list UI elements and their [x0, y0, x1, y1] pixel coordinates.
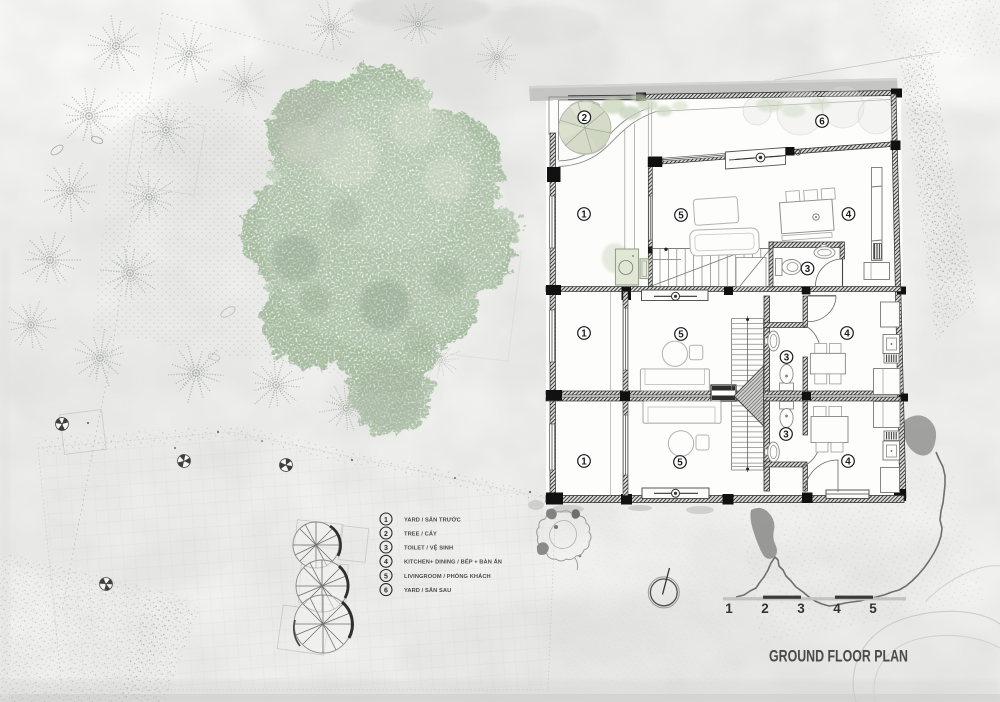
svg-text:GROUND FLOOR PLAN: GROUND FLOOR PLAN	[769, 648, 908, 666]
svg-text:5: 5	[384, 573, 388, 580]
svg-text:5: 5	[677, 458, 683, 469]
svg-text:LIVINGROOM / PHÒNG KHÁCH: LIVINGROOM / PHÒNG KHÁCH	[404, 572, 491, 580]
svg-text:4: 4	[833, 601, 841, 616]
svg-text:6: 6	[819, 117, 825, 128]
svg-text:KITCHEN+ DINING / BẾP + BÀN ĂN: KITCHEN+ DINING / BẾP + BÀN ĂN	[404, 559, 502, 566]
svg-text:3: 3	[783, 430, 789, 441]
svg-text:3: 3	[384, 545, 388, 552]
svg-text:YARD / SÂN TRƯỚC: YARD / SÂN TRƯỚC	[404, 515, 461, 523]
svg-text:5: 5	[678, 211, 684, 222]
svg-text:3: 3	[784, 353, 790, 364]
svg-text:1: 1	[581, 210, 587, 221]
svg-text:6: 6	[384, 587, 388, 594]
svg-text:5: 5	[869, 601, 877, 616]
svg-text:4: 4	[844, 329, 850, 340]
svg-text:2: 2	[761, 601, 769, 616]
svg-text:TOILET / VỆ SINH: TOILET / VỆ SINH	[404, 543, 453, 551]
svg-text:3: 3	[797, 601, 805, 616]
svg-text:1: 1	[581, 329, 587, 340]
svg-text:3: 3	[805, 264, 811, 275]
svg-text:4: 4	[845, 457, 851, 468]
svg-text:2: 2	[384, 531, 388, 538]
svg-text:2: 2	[582, 113, 588, 124]
svg-text:4: 4	[384, 559, 388, 566]
svg-text:1: 1	[384, 517, 388, 524]
svg-text:1: 1	[725, 601, 733, 616]
svg-text:4: 4	[846, 210, 852, 221]
svg-text:5: 5	[678, 330, 684, 341]
svg-text:YARD / SÂN SAU: YARD / SÂN SAU	[404, 587, 451, 594]
svg-text:1: 1	[581, 457, 587, 468]
svg-text:TREE / CÂY: TREE / CÂY	[404, 530, 437, 537]
